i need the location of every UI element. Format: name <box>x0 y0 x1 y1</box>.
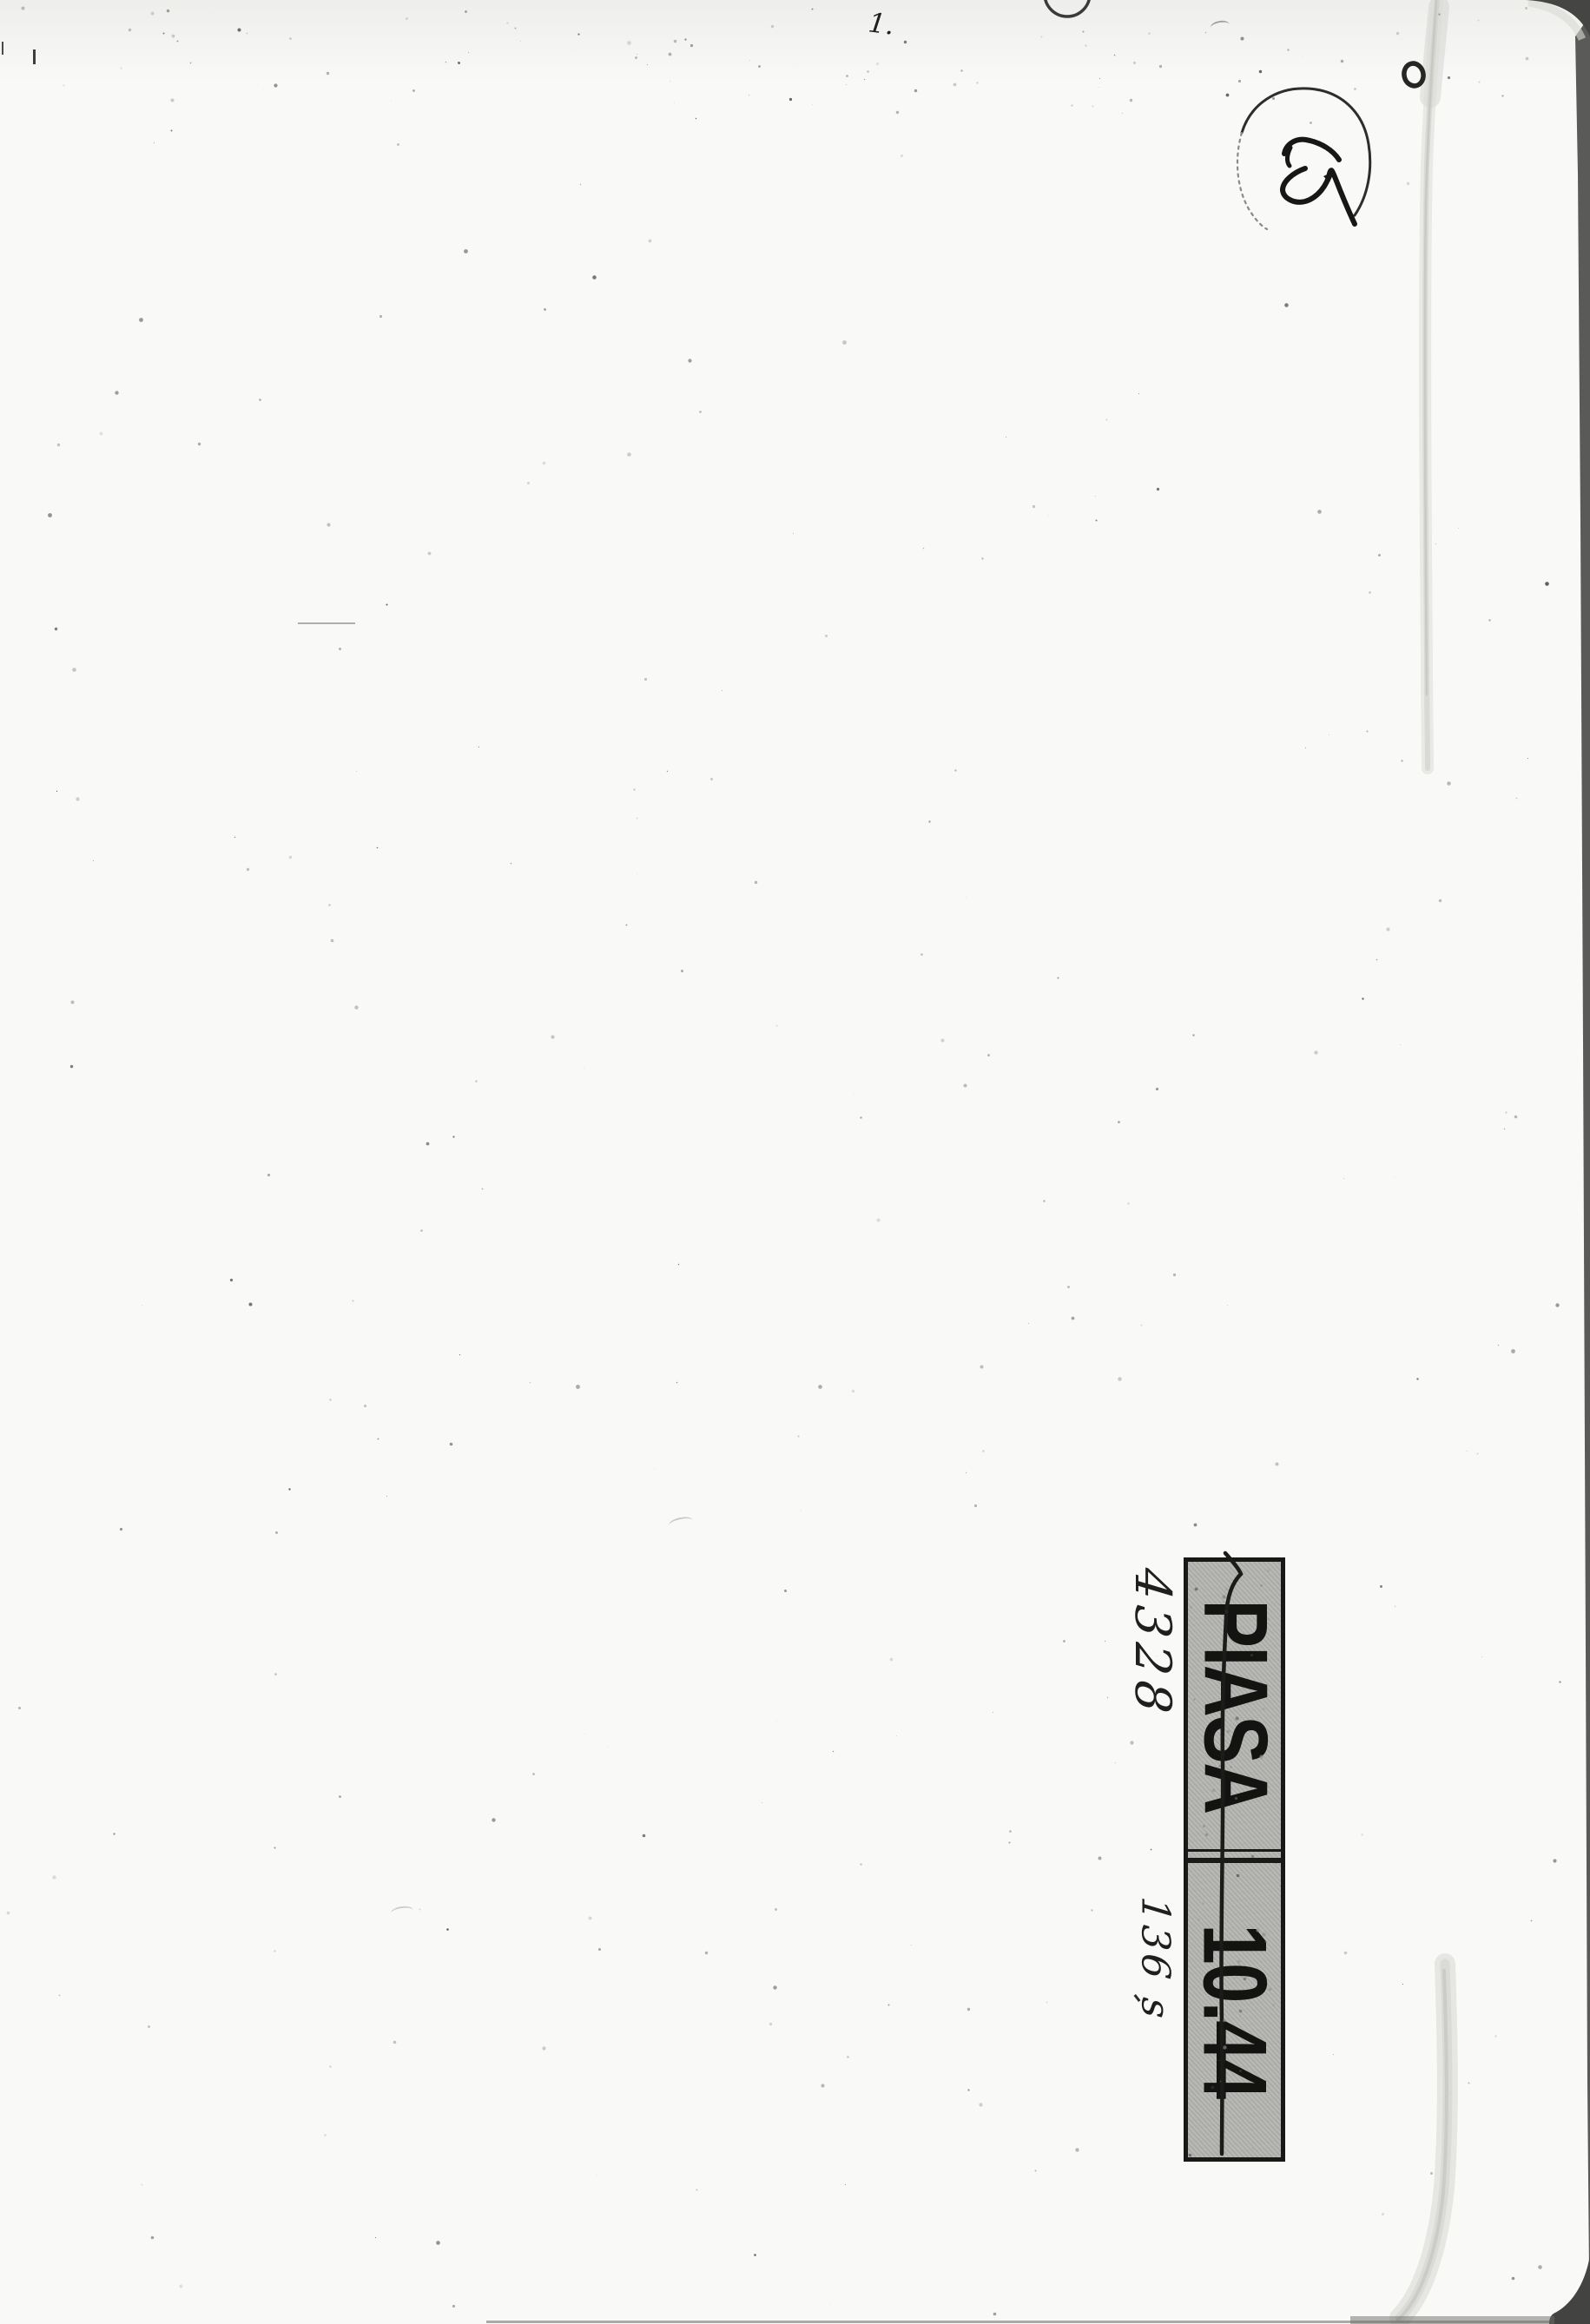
top-edge-pen-arc <box>1045 0 1090 16</box>
corner-dark-bottom-right <box>1549 2255 1590 2324</box>
circled-annotation <box>1237 89 1370 229</box>
ink-ring-mark <box>1402 62 1426 88</box>
ink-and-shadow-overlay <box>0 0 1590 2324</box>
crease-bottom-right <box>1398 1964 1448 2320</box>
right-edge-shadow <box>1575 16 1590 2275</box>
scanned-page: PIASA 10.44 4328 136 s 1. <box>0 0 1590 2324</box>
crease-top-right <box>1425 0 1439 768</box>
bottom-edge-shadow <box>1350 2316 1554 2324</box>
pen-strike-line <box>1221 1553 1241 2154</box>
